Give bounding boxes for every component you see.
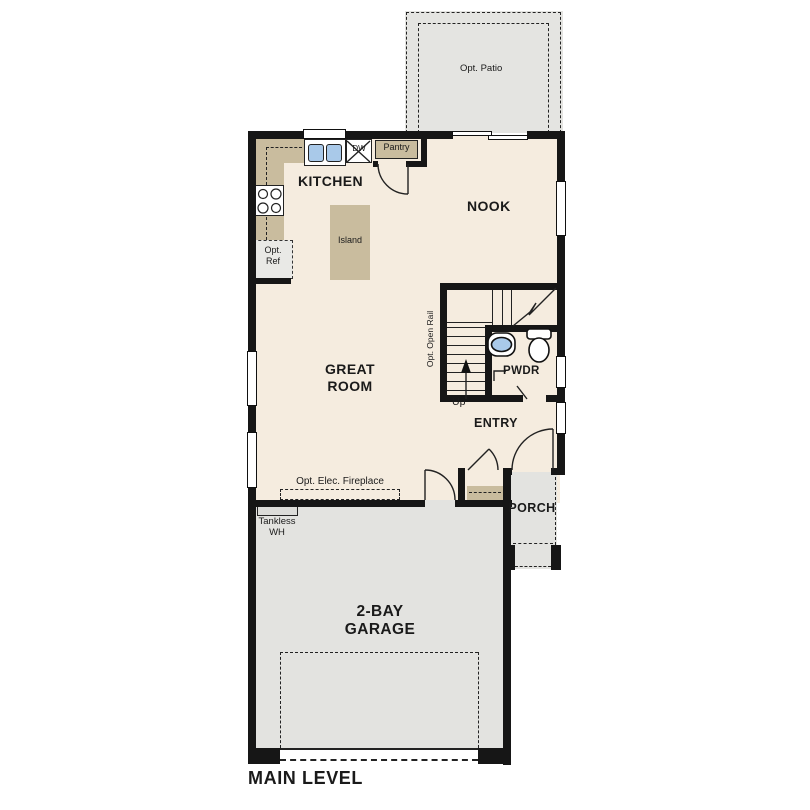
stair-tread: [447, 327, 487, 328]
garage-parking-dashed: [280, 652, 281, 748]
powder-window: [556, 356, 566, 388]
tankless-wh-label: Tankless WH: [253, 517, 301, 538]
kitchen-label: KITCHEN: [298, 174, 363, 189]
wall-segment: [440, 283, 557, 290]
sink-basin-left: [308, 144, 324, 162]
stair-tread: [447, 345, 487, 346]
stairs-up-label: Up: [452, 397, 465, 409]
closet-rod-dashed: [469, 492, 501, 493]
dishwasher-label: DW: [346, 145, 372, 154]
stair-tread: [447, 390, 487, 391]
opt-ref-label: Opt. Ref: [253, 245, 293, 267]
garage-door-dashed: [280, 759, 478, 761]
opt-ref-line2: Ref: [266, 256, 280, 266]
wall-segment: [406, 161, 427, 167]
plan-title: MAIN LEVEL: [248, 769, 363, 789]
island-label: Island: [330, 236, 370, 246]
stair-tread: [447, 354, 487, 355]
stair-landing-tread: [511, 290, 512, 325]
patio-dashed-inner: [418, 23, 549, 24]
entry-closet-shelf: [467, 486, 503, 500]
wall-segment: [458, 468, 465, 507]
upper-cabinet-dashed: [266, 147, 302, 148]
nook-label: NOOK: [467, 199, 511, 214]
stair-landing-tread: [492, 290, 493, 325]
range: [255, 185, 284, 216]
nook-window: [556, 181, 566, 236]
garage-parking-dashed: [280, 652, 478, 653]
opt-ref-line1: Opt.: [264, 245, 281, 255]
tankless-line2: WH: [269, 527, 285, 538]
floor-plan: Opt. Patio KITCHEN Pantry DW Island Opt.…: [0, 0, 810, 810]
great-room-window: [247, 351, 257, 406]
sink-basin-right: [326, 144, 342, 162]
entry-label: ENTRY: [474, 417, 518, 431]
wall-segment: [485, 325, 557, 332]
garage-line2: GARAGE: [345, 621, 415, 638]
wall-segment: [485, 325, 492, 402]
fireplace-label: Opt. Elec. Fireplace: [280, 476, 400, 487]
stair-tread: [447, 336, 487, 337]
porch-step-dashed: [513, 543, 553, 544]
optional-fireplace-footprint: [280, 489, 400, 500]
patio-label: Opt. Patio: [460, 64, 502, 74]
garage-label: 2-BAY GARAGE: [330, 603, 430, 639]
porch-step-dashed: [515, 566, 551, 567]
porch-label: PORCH: [507, 502, 557, 516]
great-room-line1: GREAT: [325, 361, 375, 377]
porch-step-wall: [503, 545, 515, 570]
wall-segment: [546, 395, 557, 402]
porch-step-wall: [551, 545, 561, 570]
wall-segment: [248, 500, 425, 507]
pantry-label: Pantry: [375, 143, 418, 153]
stair-tread: [447, 363, 487, 364]
wall-segment: [248, 748, 280, 764]
kitchen-window: [303, 129, 346, 139]
wall-segment: [248, 278, 291, 284]
stair-tread: [447, 381, 487, 382]
patio-dashed-inner: [418, 23, 419, 133]
garage-line1: 2-BAY: [356, 603, 403, 620]
wall-segment: [440, 283, 447, 402]
patio-dashed-outline: [560, 12, 561, 133]
wall-segment: [551, 468, 565, 475]
tankless-line1: Tankless: [259, 516, 296, 527]
great-room-window: [247, 432, 257, 488]
patio-dashed-outline: [406, 12, 561, 13]
patio-dashed-inner: [548, 23, 549, 133]
wall-segment: [478, 748, 511, 764]
open-rail-label: Opt. Open Rail: [425, 299, 437, 379]
garage-door-line: [280, 748, 478, 750]
sliding-door-panel: [488, 135, 528, 140]
great-room-label: GREAT ROOM: [310, 361, 390, 395]
powder-label: PWDR: [503, 365, 540, 378]
patio-dashed-outline: [406, 12, 407, 133]
great-room-line2: ROOM: [327, 378, 372, 394]
sliding-door-panel: [452, 131, 492, 136]
stair-tread: [447, 372, 487, 373]
stair-landing-tread: [502, 290, 503, 325]
wall-segment: [373, 161, 378, 167]
garage-parking-dashed: [478, 652, 479, 748]
entry-window: [556, 402, 566, 434]
main-floor-area: [252, 135, 560, 503]
stair-landing-edge: [447, 322, 492, 323]
wall-segment: [492, 395, 523, 402]
